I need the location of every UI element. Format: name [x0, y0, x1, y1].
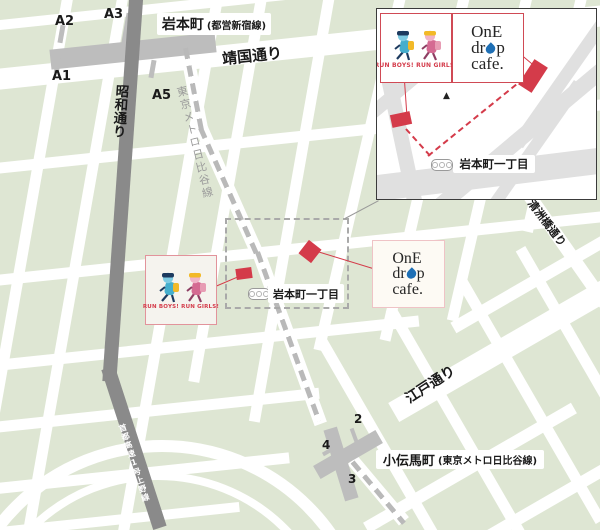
exit-label-a2: A2 — [55, 14, 74, 29]
one-drop-cafe-box: OnE drp cafe. — [452, 13, 524, 83]
one-drop-logo-line2: drp — [392, 266, 424, 281]
access-map: 首都高速1号上野線 東京メトロ日比谷線 — [0, 0, 600, 530]
run-boys-run-girls-characters — [388, 28, 444, 62]
run-boys-run-girls-box: RUN BOYS! RUN GIRLS! — [145, 255, 217, 325]
run-boys-run-girls-box: RUN BOYS! RUN GIRLS! — [380, 13, 452, 83]
shop-building-marker — [235, 267, 252, 280]
exit-label-a5: A5 — [152, 88, 171, 103]
iwamotocho-station-label: 岩本町 (都営新宿線) — [157, 13, 271, 35]
run-logo-caption: RUN BOYS! RUN GIRLS! — [143, 304, 219, 310]
exit-stub-2 — [350, 428, 359, 443]
exit-label-a3: A3 — [104, 7, 123, 22]
run-logo-caption: RUN BOYS! RUN GIRLS! — [376, 62, 457, 69]
one-drop-logo-line1: OnE — [392, 251, 424, 266]
landmark-triangle-icon: ▲ — [443, 91, 450, 101]
exit-label-a1: A1 — [52, 69, 71, 84]
exit-label-2: 2 — [354, 412, 362, 426]
kodenmacho-station-label: 小伝馬町 (東京メトロ日比谷線) — [376, 450, 544, 469]
inset-detail-map: ▲ RUN BOYS! RUN GIRLS! — [376, 8, 597, 200]
one-drop-logo-line3: cafe. — [471, 56, 505, 72]
one-drop-logo-line3: cafe. — [392, 282, 424, 297]
run-boys-run-girls-characters — [153, 270, 209, 304]
traffic-light-icon — [431, 159, 453, 171]
road-label-showa: 昭和通り — [107, 83, 131, 138]
shop-building-marker — [390, 111, 412, 128]
traffic-light-icon — [248, 288, 270, 300]
exit-label-3: 3 — [348, 472, 356, 486]
one-drop-cafe-box: OnE drp cafe. — [372, 240, 445, 308]
exit-label-4: 4 — [322, 438, 330, 452]
crossing-label-iwamotocho-1chome: 岩本町一丁目 — [453, 155, 535, 173]
crossing-label-iwamotocho-1chome: 岩本町一丁目 — [268, 284, 344, 303]
